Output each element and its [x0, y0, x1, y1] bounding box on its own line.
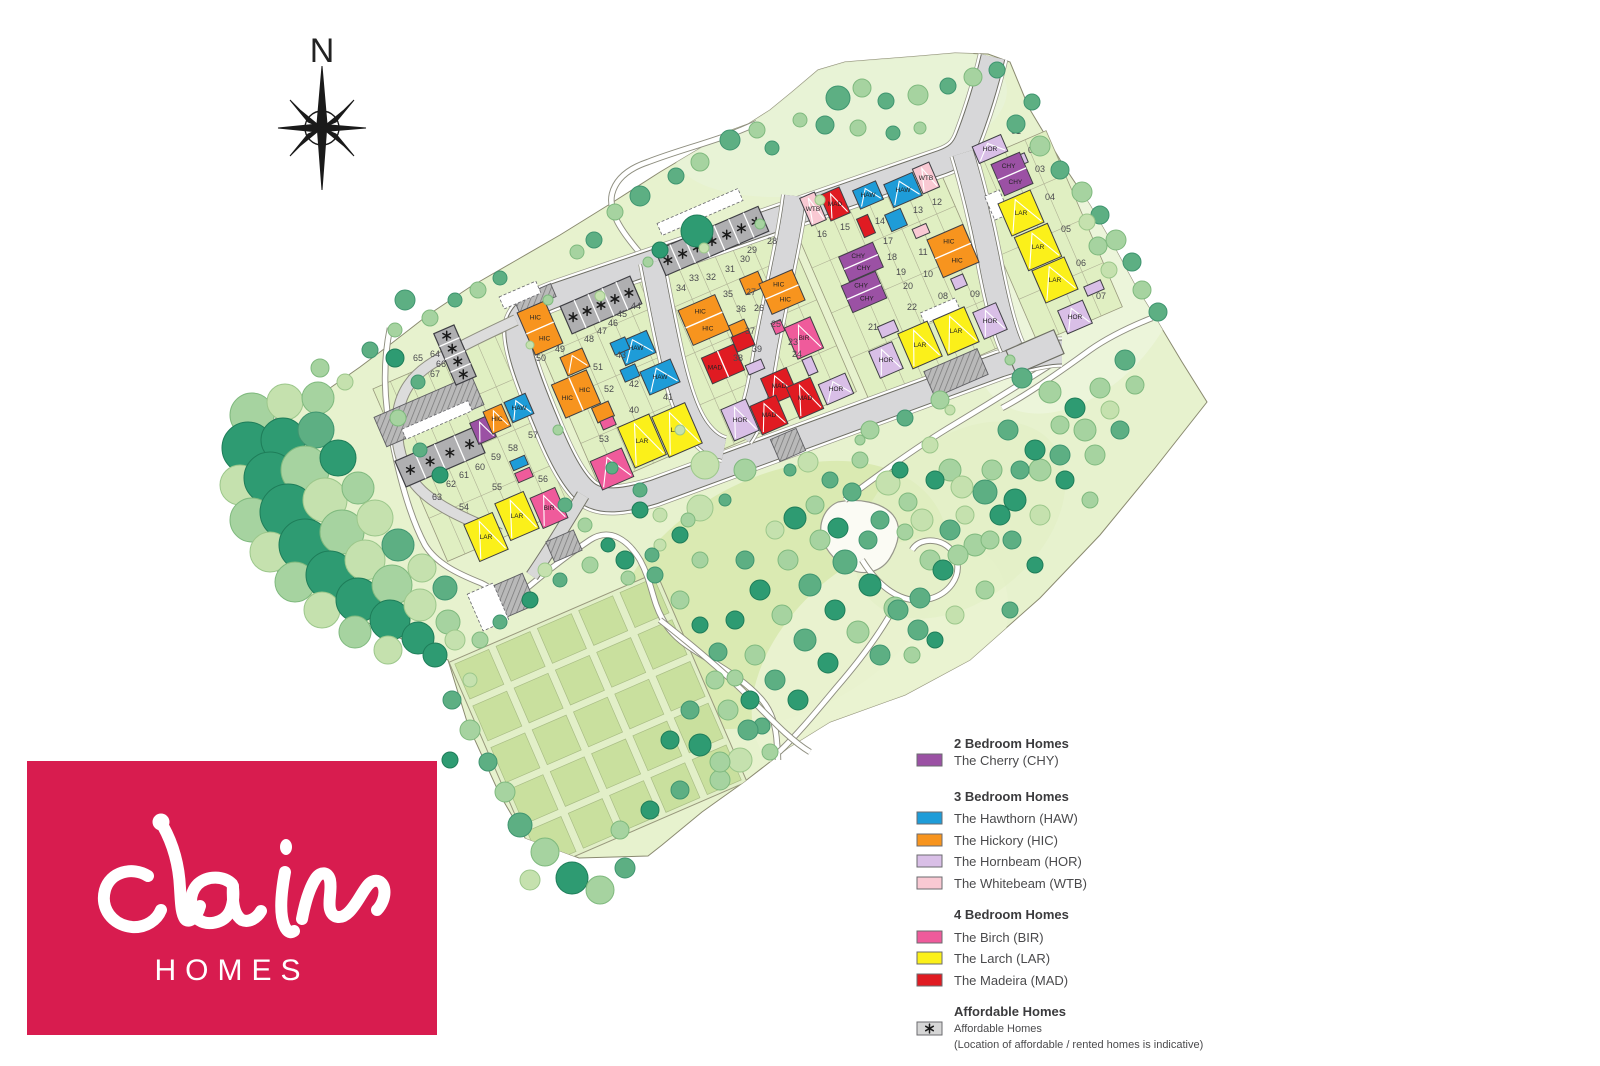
- svg-text:LAR: LAR: [636, 438, 649, 445]
- svg-text:LAR: LAR: [1032, 244, 1045, 251]
- svg-text:13: 13: [913, 205, 923, 215]
- svg-text:05: 05: [1061, 224, 1071, 234]
- svg-text:HOMES: HOMES: [154, 954, 309, 987]
- svg-text:54: 54: [459, 502, 469, 512]
- svg-text:4 Bedroom Homes: 4 Bedroom Homes: [954, 907, 1069, 922]
- svg-text:Affordable Homes: Affordable Homes: [954, 1023, 1042, 1035]
- svg-text:The Hornbeam (HOR): The Hornbeam (HOR): [954, 854, 1082, 869]
- svg-text:25: 25: [771, 319, 781, 329]
- svg-text:07: 07: [1096, 291, 1106, 301]
- svg-text:21: 21: [868, 322, 878, 332]
- svg-text:34: 34: [676, 283, 686, 293]
- svg-text:MAD: MAD: [772, 383, 787, 390]
- svg-text:08: 08: [938, 291, 948, 301]
- svg-text:33: 33: [689, 273, 699, 283]
- svg-text:LAR: LAR: [1049, 277, 1062, 284]
- svg-text:55: 55: [492, 482, 502, 492]
- svg-text:57: 57: [528, 430, 538, 440]
- svg-text:17: 17: [883, 236, 893, 246]
- svg-text:35: 35: [723, 289, 733, 299]
- svg-text:CHY: CHY: [857, 265, 871, 272]
- svg-text:63: 63: [432, 492, 442, 502]
- svg-text:BIR: BIR: [544, 505, 555, 512]
- svg-text:43: 43: [616, 350, 626, 360]
- svg-text:10: 10: [923, 269, 933, 279]
- svg-text:HAW: HAW: [512, 405, 528, 412]
- svg-text:06: 06: [1076, 258, 1086, 268]
- svg-text:LAR: LAR: [950, 328, 963, 335]
- svg-text:MAD: MAD: [798, 395, 813, 402]
- svg-text:HOR: HOR: [879, 357, 894, 364]
- svg-text:39: 39: [752, 344, 762, 354]
- svg-text:32: 32: [706, 272, 716, 282]
- svg-text:CHY: CHY: [854, 282, 868, 289]
- svg-text:HIC: HIC: [562, 395, 574, 402]
- svg-text:HOR: HOR: [1068, 314, 1083, 321]
- svg-text:HIC: HIC: [702, 326, 714, 333]
- svg-text:HIC: HIC: [539, 336, 551, 343]
- svg-text:The Madeira (MAD): The Madeira (MAD): [954, 973, 1068, 988]
- svg-text:MAD: MAD: [708, 365, 723, 372]
- svg-text:37: 37: [745, 326, 755, 336]
- svg-text:3 Bedroom Homes: 3 Bedroom Homes: [954, 789, 1069, 804]
- svg-text:26: 26: [754, 303, 764, 313]
- svg-text:40: 40: [629, 405, 639, 415]
- svg-text:LAR: LAR: [480, 534, 493, 541]
- svg-text:MAD: MAD: [828, 201, 843, 208]
- svg-text:HIC: HIC: [579, 387, 591, 394]
- svg-text:HOR: HOR: [983, 318, 998, 325]
- svg-text:HAW: HAW: [629, 345, 645, 352]
- svg-text:HOR: HOR: [733, 417, 748, 424]
- svg-text:HIC: HIC: [951, 257, 963, 264]
- svg-text:12: 12: [932, 197, 942, 207]
- svg-text:The Larch (LAR): The Larch (LAR): [954, 951, 1050, 966]
- svg-text:HIC: HIC: [695, 308, 707, 315]
- svg-text:49: 49: [555, 344, 565, 354]
- svg-text:48: 48: [584, 334, 594, 344]
- svg-text:The Whitebeam (WTB): The Whitebeam (WTB): [954, 876, 1087, 891]
- svg-text:38: 38: [733, 353, 743, 363]
- svg-text:HIC: HIC: [943, 239, 955, 246]
- svg-text:BIR: BIR: [799, 335, 810, 342]
- svg-text:66: 66: [436, 359, 446, 369]
- svg-text:HAW: HAW: [896, 187, 912, 194]
- svg-text:HAW: HAW: [861, 192, 877, 199]
- svg-text:62: 62: [446, 479, 456, 489]
- svg-text:HIC: HIC: [491, 416, 503, 423]
- svg-text:The Birch (BIR): The Birch (BIR): [954, 930, 1044, 945]
- svg-text:31: 31: [725, 264, 735, 274]
- svg-text:HAW: HAW: [653, 374, 669, 381]
- svg-text:59: 59: [491, 452, 501, 462]
- svg-text:N: N: [310, 32, 335, 70]
- svg-text:CHY: CHY: [851, 253, 865, 260]
- svg-text:61: 61: [459, 470, 469, 480]
- svg-text:HOR: HOR: [829, 386, 844, 393]
- svg-text:HOR: HOR: [983, 146, 998, 153]
- svg-text:2 Bedroom Homes: 2 Bedroom Homes: [954, 736, 1069, 751]
- svg-text:58: 58: [508, 443, 518, 453]
- svg-text:41: 41: [663, 392, 673, 402]
- svg-text:WTB: WTB: [806, 206, 820, 213]
- svg-text:LAR: LAR: [1015, 210, 1028, 217]
- svg-text:60: 60: [475, 462, 485, 472]
- svg-text:19: 19: [896, 267, 906, 277]
- svg-text:WTB: WTB: [919, 175, 933, 182]
- svg-text:14: 14: [875, 216, 885, 226]
- svg-text:64: 64: [430, 349, 440, 359]
- svg-text:11: 11: [918, 247, 927, 257]
- svg-text:46: 46: [608, 318, 618, 328]
- svg-text:56: 56: [538, 474, 548, 484]
- svg-text:44: 44: [631, 301, 641, 311]
- svg-text:HIC: HIC: [780, 297, 792, 304]
- svg-text:04: 04: [1045, 192, 1055, 202]
- svg-text:09: 09: [970, 289, 980, 299]
- svg-text:22: 22: [907, 302, 917, 312]
- svg-text:HIC: HIC: [530, 314, 542, 321]
- svg-text:The Hickory (HIC): The Hickory (HIC): [954, 833, 1058, 848]
- svg-text:CHY: CHY: [860, 296, 874, 303]
- svg-text:18: 18: [887, 252, 897, 262]
- svg-text:52: 52: [604, 384, 614, 394]
- svg-text:The Cherry (CHY): The Cherry (CHY): [954, 753, 1059, 768]
- svg-text:CHY: CHY: [1002, 163, 1016, 170]
- svg-text:36: 36: [736, 304, 746, 314]
- svg-text:HIC: HIC: [773, 281, 785, 288]
- svg-text:50: 50: [536, 353, 546, 363]
- svg-text:27: 27: [746, 287, 756, 297]
- svg-text:03: 03: [1035, 164, 1045, 174]
- svg-text:CHY: CHY: [1009, 179, 1023, 186]
- svg-text:The Hawthorn (HAW): The Hawthorn (HAW): [954, 811, 1078, 826]
- svg-text:LAR: LAR: [914, 342, 927, 349]
- svg-text:65: 65: [413, 353, 423, 363]
- svg-text:42: 42: [629, 379, 639, 389]
- svg-text:23: 23: [788, 337, 798, 347]
- svg-text:30: 30: [740, 254, 750, 264]
- svg-text:20: 20: [903, 281, 913, 291]
- svg-text:Affordable Homes: Affordable Homes: [954, 1004, 1066, 1019]
- svg-text:45: 45: [617, 309, 627, 319]
- svg-text:53: 53: [599, 434, 609, 444]
- svg-text:47: 47: [597, 326, 607, 336]
- svg-text:51: 51: [593, 362, 603, 372]
- svg-text:67: 67: [430, 369, 440, 379]
- svg-text:LAR: LAR: [511, 513, 524, 520]
- svg-text:16: 16: [817, 229, 827, 239]
- svg-text:15: 15: [840, 222, 850, 232]
- svg-text:(Location of affordable / rent: (Location of affordable / rented homes i…: [954, 1039, 1203, 1051]
- svg-text:MAD: MAD: [762, 412, 777, 419]
- svg-text:24: 24: [792, 349, 802, 359]
- svg-text:28: 28: [767, 236, 777, 246]
